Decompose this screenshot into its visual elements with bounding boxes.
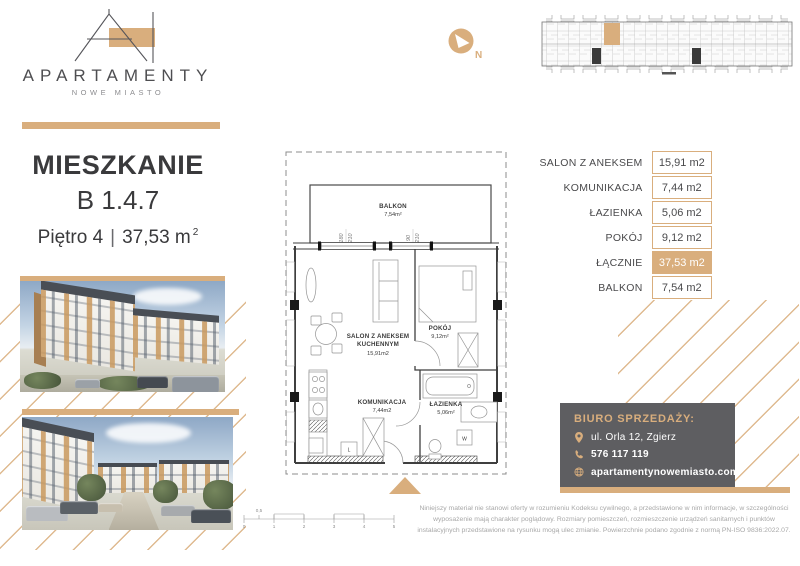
svg-text:180: 180 bbox=[339, 232, 345, 242]
brochure-page: APARTAMENTY NOWE MIASTO MIESZKANIE B 1.4… bbox=[0, 0, 800, 566]
sofa bbox=[373, 260, 398, 322]
cabinet bbox=[309, 438, 323, 453]
chair bbox=[311, 316, 321, 325]
office-address-row: ul. Orla 12, Zgierz bbox=[574, 432, 723, 443]
stove bbox=[309, 372, 327, 398]
table-row: ŁAZIENKA 5,06 m2 bbox=[520, 201, 712, 224]
komunikacja-area: 7,44m2 bbox=[373, 408, 392, 414]
table-row: BALKON 7,54 m2 bbox=[520, 276, 712, 299]
office-accent-bar bbox=[560, 487, 790, 493]
svg-text:3: 3 bbox=[333, 524, 336, 529]
chair bbox=[311, 346, 321, 355]
pokoj-area: 9,12m² bbox=[431, 334, 449, 340]
table-row: KOMUNIKACJA 7,44 m2 bbox=[520, 176, 712, 199]
unit-area: 37,53 m bbox=[122, 227, 191, 248]
svg-text:210: 210 bbox=[415, 232, 421, 243]
office-address: ul. Orla 12, Zgierz bbox=[591, 432, 676, 443]
photo-accent-bar-2 bbox=[22, 409, 239, 415]
svg-text:0: 0 bbox=[243, 524, 246, 529]
row-value: 7,44 m2 bbox=[652, 176, 712, 199]
phone-icon bbox=[574, 450, 584, 460]
unit-code: B 1.4.7 bbox=[0, 185, 236, 216]
table-row: SALON Z ANEKSEM 15,91 m2 bbox=[520, 151, 712, 174]
svg-text:2: 2 bbox=[303, 524, 306, 529]
dishwasher bbox=[309, 420, 327, 432]
lazienka-area: 5,06m² bbox=[437, 410, 455, 416]
globe-icon bbox=[574, 467, 584, 477]
chair bbox=[332, 344, 342, 353]
row-value: 7,54 m2 bbox=[652, 276, 712, 299]
chair bbox=[332, 313, 342, 322]
cloud bbox=[106, 423, 190, 443]
car bbox=[161, 505, 195, 516]
svg-text:5: 5 bbox=[393, 524, 395, 529]
highlighted-unit-marker bbox=[604, 23, 620, 45]
building-overview-plan bbox=[536, 12, 798, 80]
svg-text:210: 210 bbox=[348, 232, 354, 243]
balkon-area: 7,54m² bbox=[384, 212, 402, 218]
tree bbox=[153, 480, 178, 503]
tree bbox=[77, 474, 107, 501]
north-label: N bbox=[475, 50, 482, 61]
office-phone[interactable]: 576 117 119 bbox=[591, 449, 649, 460]
building-far bbox=[98, 463, 157, 493]
washbasin bbox=[471, 406, 487, 418]
lazienka-label: ŁAZIENKA bbox=[430, 401, 463, 408]
salon-area: 15,91m2 bbox=[367, 351, 389, 357]
floor-plan: BALKON 7,54m² 180 210 90 210 bbox=[285, 150, 507, 476]
car bbox=[191, 509, 231, 524]
bush bbox=[24, 372, 61, 389]
location-pin-icon bbox=[574, 432, 584, 443]
plant bbox=[306, 268, 316, 302]
accent-divider bbox=[22, 122, 220, 129]
balcony-windows bbox=[318, 242, 433, 251]
row-label: ŁĄCZNIE bbox=[520, 257, 652, 269]
unit-floor: Piętro 4 bbox=[38, 227, 103, 248]
svg-text:KUCHENNYM: KUCHENNYM bbox=[357, 341, 399, 348]
row-value: 9,12 m2 bbox=[652, 226, 712, 249]
tree bbox=[203, 480, 233, 509]
balcony: BALKON 7,54m² bbox=[310, 185, 491, 243]
compass-icon: N bbox=[444, 24, 488, 66]
washer-label: W bbox=[462, 437, 467, 443]
unit-floor-area: Piętro 4|37,53 m2 bbox=[0, 227, 236, 249]
unit-kind-label: MIESZKANIE bbox=[0, 150, 236, 181]
car bbox=[60, 501, 98, 515]
komunikacja-label: KOMUNIKACJA bbox=[358, 399, 407, 406]
toilet bbox=[429, 440, 441, 453]
row-label: SALON Z ANEKSEM bbox=[520, 157, 652, 169]
table-row-total: ŁĄCZNIE 37,53 m2 bbox=[520, 251, 712, 274]
photo-building-exterior-1 bbox=[20, 281, 225, 392]
salon-label: SALON Z ANEKSEM bbox=[347, 333, 410, 340]
row-value: 15,91 m2 bbox=[652, 151, 712, 174]
brand-logo-monogram bbox=[72, 8, 166, 66]
office-phone-row[interactable]: 576 117 119 bbox=[574, 449, 723, 460]
building-facade bbox=[41, 289, 135, 371]
balkon-label: BALKON bbox=[379, 203, 407, 210]
svg-text:4: 4 bbox=[363, 524, 366, 529]
dining-table bbox=[316, 324, 337, 345]
pokoj-label: POKÓJ bbox=[429, 324, 452, 332]
office-website-row[interactable]: apartamentynowemiasto.com bbox=[574, 467, 723, 478]
sales-office-title: BIURO SPRZEDAŻY: bbox=[574, 413, 723, 425]
sales-office-card: BIURO SPRZEDAŻY: ul. Orla 12, Zgierz 576… bbox=[560, 403, 735, 487]
car bbox=[98, 503, 123, 512]
row-label: ŁAZIENKA bbox=[520, 207, 652, 219]
fridge-label: L bbox=[348, 448, 351, 454]
office-website[interactable]: apartamentynowemiasto.com bbox=[591, 467, 739, 478]
row-value: 37,53 m2 bbox=[652, 251, 712, 274]
unit-header: MIESZKANIE B 1.4.7 Piętro 4|37,53 m2 bbox=[0, 150, 236, 249]
photo-building-exterior-2 bbox=[22, 417, 233, 530]
car bbox=[75, 379, 100, 388]
car bbox=[137, 376, 168, 387]
row-label: KOMUNIKACJA bbox=[520, 182, 652, 194]
furniture bbox=[306, 260, 497, 459]
scale-half-label: 0,5 bbox=[256, 508, 263, 513]
svg-text:90: 90 bbox=[406, 234, 412, 241]
area-superscript: 2 bbox=[193, 227, 199, 238]
svg-text:1: 1 bbox=[273, 524, 276, 529]
brand-subtitle: NOWE MIASTO bbox=[0, 88, 236, 97]
row-value: 5,06 m2 bbox=[652, 201, 712, 224]
entrance-arrow bbox=[389, 477, 421, 494]
row-label: POKÓJ bbox=[520, 232, 652, 244]
car bbox=[172, 376, 219, 392]
pillow bbox=[463, 271, 472, 290]
row-label: BALKON bbox=[520, 282, 652, 294]
brand-title: APARTAMENTY bbox=[0, 66, 236, 86]
scale-bar: 0,5 0 1 2 3 4 5 bbox=[243, 506, 395, 530]
disclaimer-text: Niniejszy materiał nie stanowi oferty w … bbox=[413, 503, 795, 537]
table-row: POKÓJ 9,12 m2 bbox=[520, 226, 712, 249]
building-facade bbox=[133, 315, 219, 365]
separator: | bbox=[110, 227, 115, 248]
hatched-wall bbox=[308, 456, 477, 463]
area-table: SALON Z ANEKSEM 15,91 m2 KOMUNIKACJA 7,4… bbox=[520, 151, 712, 301]
